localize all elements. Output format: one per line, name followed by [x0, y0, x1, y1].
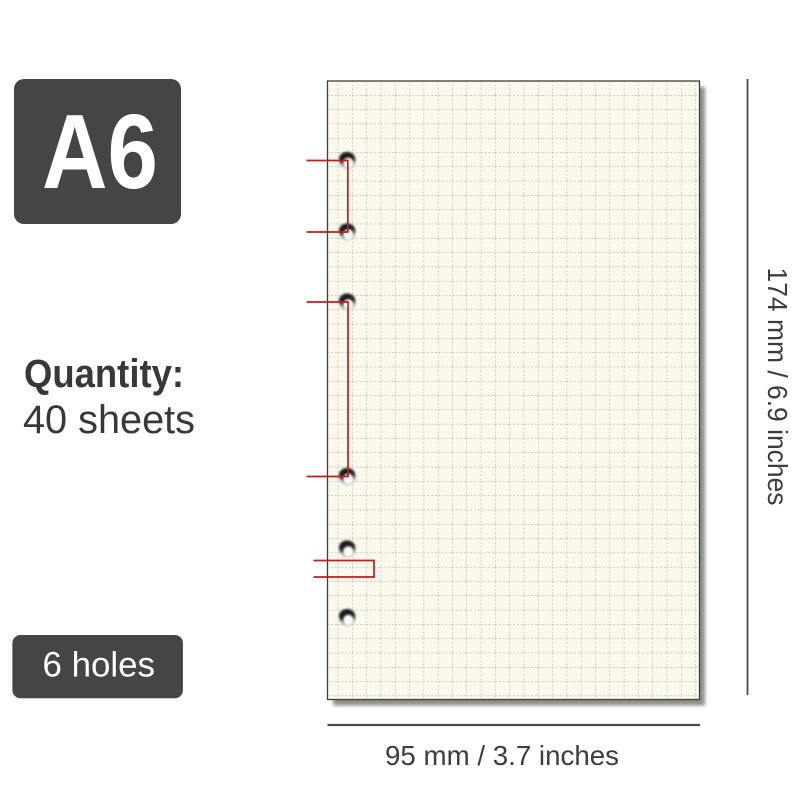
- svg-text:A6: A6: [42, 93, 158, 211]
- svg-text:40 sheets: 40 sheets: [23, 398, 195, 442]
- svg-text:95 mm / 3.7 inches: 95 mm / 3.7 inches: [385, 740, 619, 771]
- svg-text:174 mm / 6.9 inches: 174 mm / 6.9 inches: [762, 268, 793, 506]
- svg-text:Quantity:: Quantity:: [24, 352, 184, 396]
- svg-text:6 holes: 6 holes: [43, 646, 156, 685]
